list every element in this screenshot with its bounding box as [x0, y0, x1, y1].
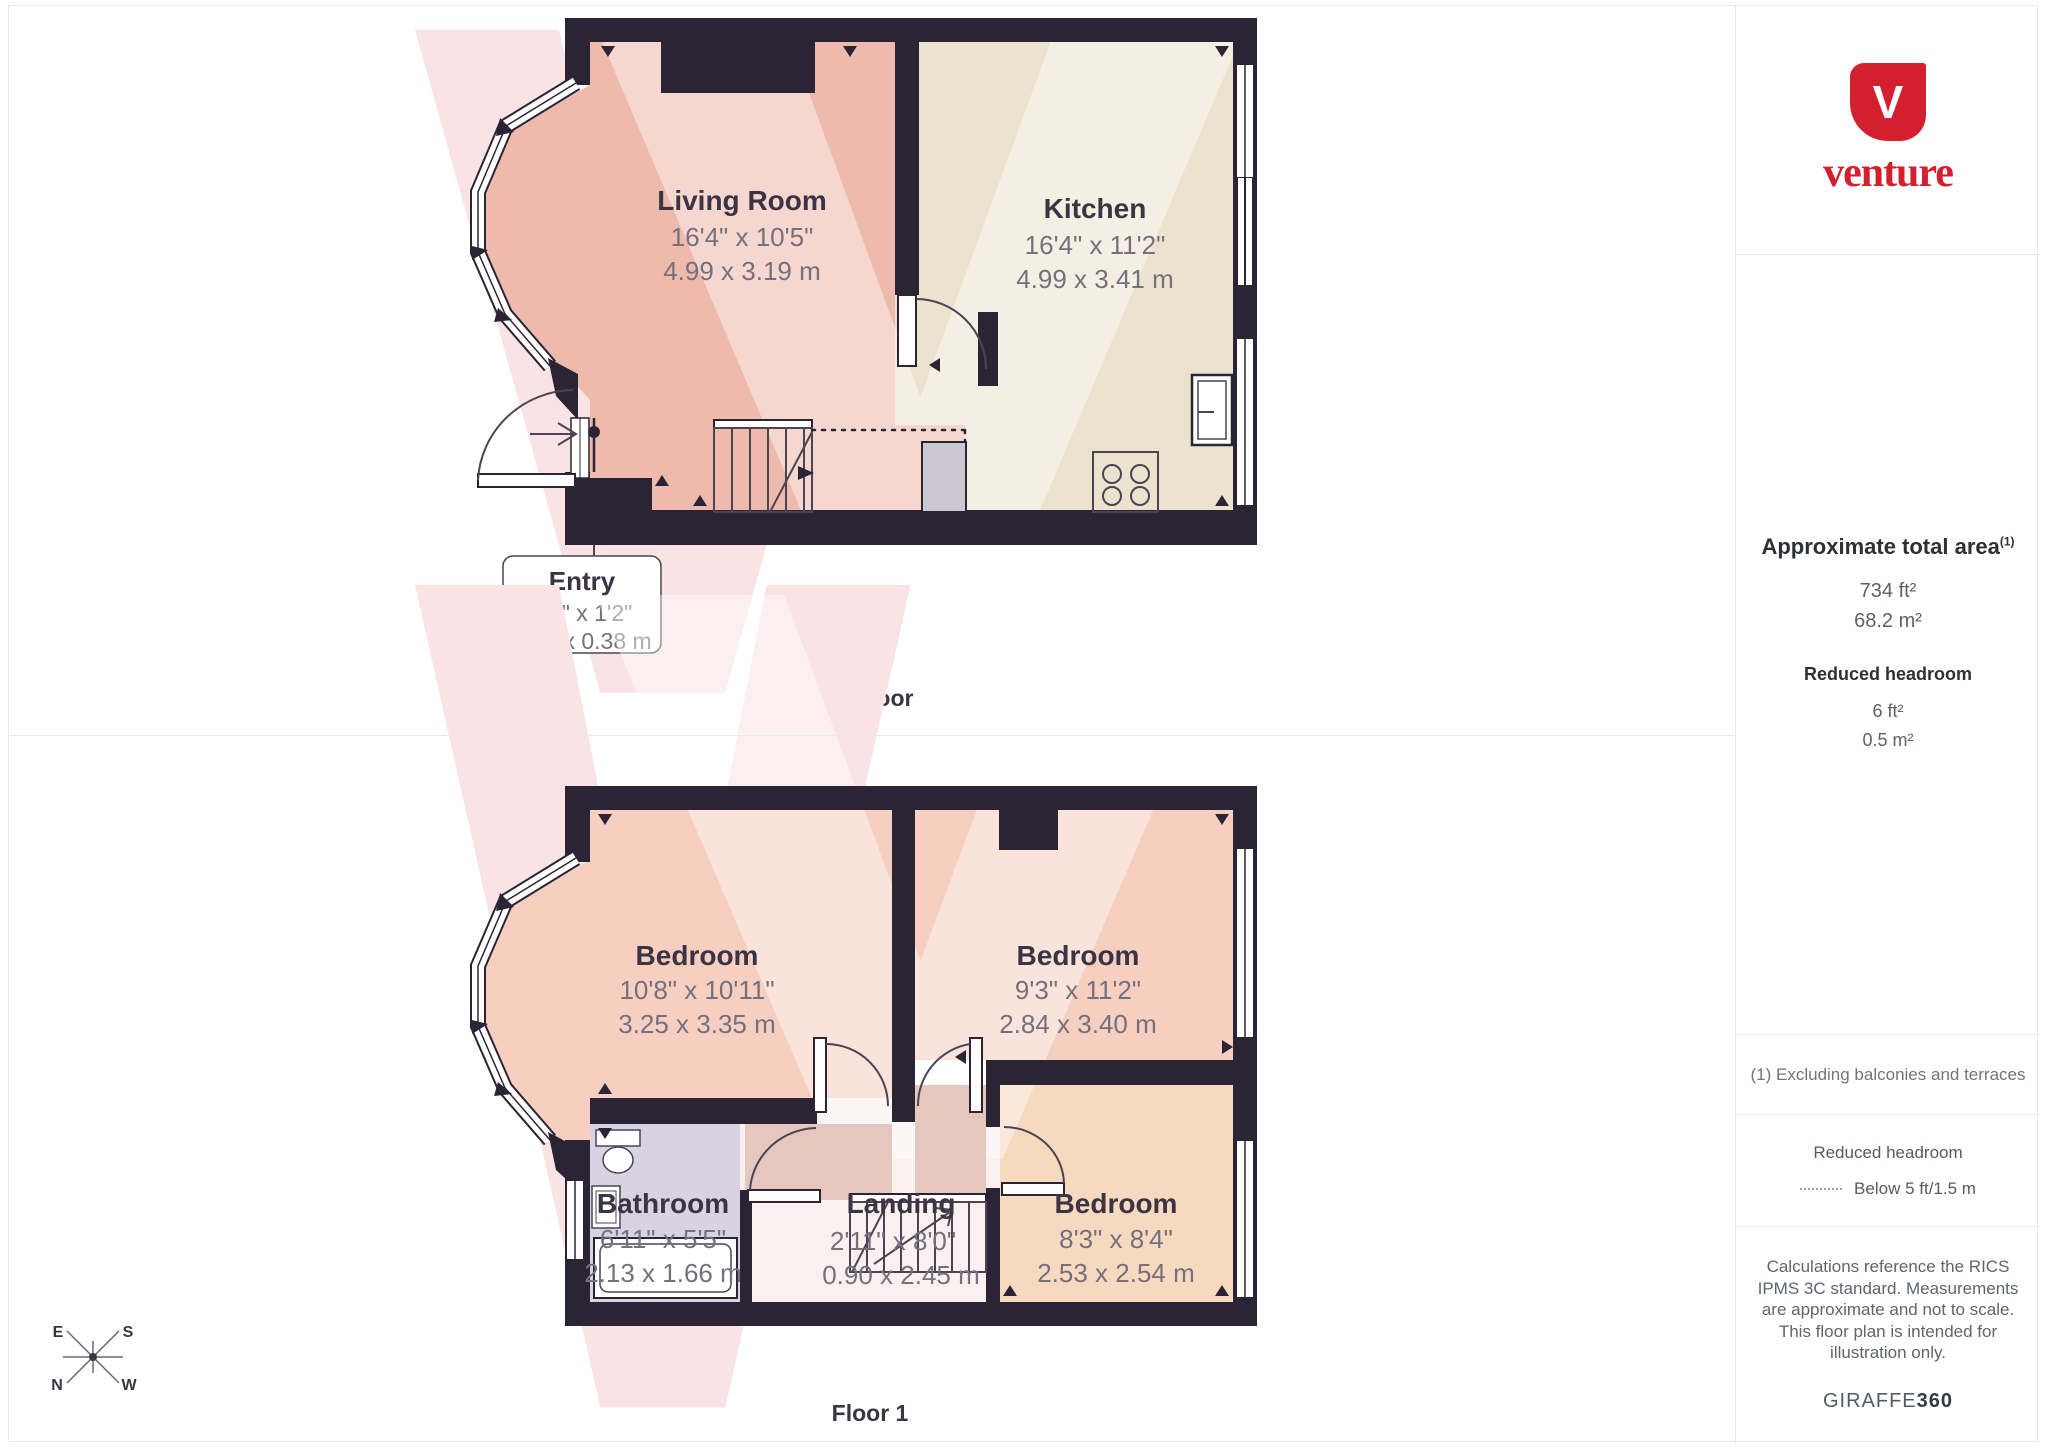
living-room-dim-metric: 4.99 x 3.19 m: [663, 256, 821, 286]
kitchen-window-upper: [1236, 64, 1254, 285]
bedroom3-dim-metric: 2.53 x 2.54 m: [1037, 1258, 1195, 1288]
bedroom2-dim-imperial: 9'3" x 11'2": [1015, 975, 1141, 1005]
bedroom1-dim-metric: 3.25 x 3.35 m: [618, 1009, 776, 1039]
bathroom-window: [566, 1180, 584, 1260]
total-area-title-text: Approximate total area: [1761, 534, 1999, 559]
first-floor-plan: Bedroom 10'8" x 10'11" 3.25 x 3.35 m Bed…: [415, 585, 1257, 1426]
bedroom3-window: [1236, 1140, 1254, 1298]
reduced-headroom-imperial: 6 ft²: [1872, 697, 1903, 726]
bedroom1-label: Bedroom: [636, 940, 759, 971]
bedroom3-dim-imperial: 8'3" x 8'4": [1059, 1224, 1173, 1254]
living-room-label: Living Room: [657, 185, 827, 216]
fridge: [922, 442, 966, 512]
compass-e: E: [53, 1324, 64, 1341]
info-sidebar: V venture Approximate total area(1) 734 …: [1736, 5, 2040, 1442]
compass-n: N: [51, 1377, 63, 1394]
dotted-line-icon: [1800, 1188, 1842, 1190]
brand-section: V venture: [1736, 5, 2040, 255]
legend-section: Reduced headroom Below 5 ft/1.5 m: [1736, 1115, 2040, 1227]
compass-w: W: [121, 1377, 137, 1394]
compass-s: S: [123, 1324, 134, 1341]
landing-label: Landing: [847, 1188, 956, 1219]
bathroom-label: Bathroom: [597, 1188, 729, 1219]
bathroom-dim-imperial: 6'11" x 5'5": [600, 1224, 726, 1254]
bedroom1-dim-imperial: 10'8" x 10'11": [619, 975, 774, 1005]
reduced-headroom-metric: 0.5 m²: [1862, 726, 1913, 755]
reduced-headroom-title: Reduced headroom: [1804, 664, 1972, 685]
venture-logo-icon: V: [1850, 63, 1926, 141]
first-floor-label: Floor 1: [832, 1400, 909, 1426]
footnote-section: (1) Excluding balconies and terraces: [1736, 1035, 2040, 1115]
footnote-text: (1) Excluding balconies and terraces: [1751, 1065, 2026, 1085]
sidebar-divider: [1735, 5, 1736, 1443]
chimney-breast-2: [999, 810, 1058, 850]
legend-title: Reduced headroom: [1813, 1143, 1962, 1163]
landing-dim-imperial: 2'11" x 8'0": [830, 1226, 956, 1256]
kitchen-door-stub: [978, 312, 998, 386]
total-area-title: Approximate total area(1): [1761, 534, 2014, 560]
credit-normal: GIRAFFE: [1823, 1390, 1917, 1412]
kitchen-window-lower: [1236, 338, 1254, 506]
kitchen-dim-imperial: 16'4" x 11'2": [1025, 230, 1166, 260]
kitchen-dim-metric: 4.99 x 3.41 m: [1016, 264, 1174, 294]
total-area-metric: 68.2 m²: [1854, 606, 1922, 636]
bathroom-dim-metric: 2.13 x 1.66 m: [584, 1258, 742, 1288]
compass-rose: E S N W: [51, 1324, 137, 1394]
living-room-dim-imperial: 16'4" x 10'5": [671, 222, 814, 252]
total-area-imperial: 734 ft²: [1860, 576, 1917, 606]
sink: [1192, 375, 1232, 445]
disclaimer-section: Calculations reference the RICS IPMS 3C …: [1736, 1227, 2040, 1442]
floors-divider: [8, 735, 1735, 736]
brand-wordmark: venture: [1823, 149, 1953, 197]
legend-entry: Below 5 ft/1.5 m: [1854, 1179, 1976, 1199]
landing-dim-metric: 0.90 x 2.45 m: [822, 1260, 980, 1290]
bedroom2-dim-metric: 2.84 x 3.40 m: [999, 1009, 1157, 1039]
giraffe360-credit: GIRAFFE360: [1823, 1390, 1953, 1413]
area-section: Approximate total area(1) 734 ft² 68.2 m…: [1736, 255, 2040, 1035]
credit-bold: 360: [1917, 1390, 1953, 1412]
bedroom2-window: [1236, 848, 1254, 1038]
floorplan-page: Entry 5'4" x 1'2" 1.64 x 0.38 m Living R…: [0, 0, 2048, 1449]
bedroom2-label: Bedroom: [1017, 940, 1140, 971]
bedroom3-label: Bedroom: [1055, 1188, 1178, 1219]
kitchen-label: Kitchen: [1044, 193, 1147, 224]
total-area-superscript: (1): [2000, 535, 2015, 549]
logo-letter: V: [1873, 75, 1904, 129]
chimney-breast: [661, 42, 815, 93]
disclaimer-text: Calculations reference the RICS IPMS 3C …: [1748, 1256, 2028, 1364]
